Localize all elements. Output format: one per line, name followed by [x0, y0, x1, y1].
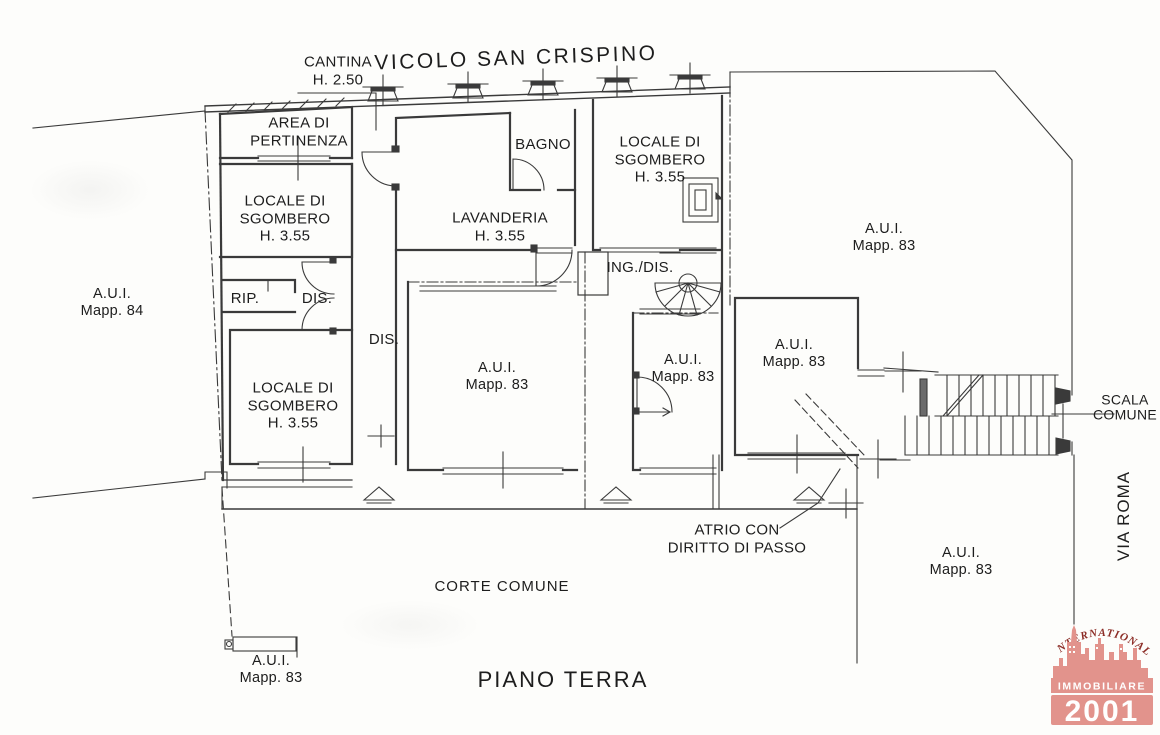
corte-comune-label: CORTE COMUNE [434, 578, 569, 596]
room-label-lavanderia: LAVANDERIAH. 3.55 [452, 209, 548, 244]
logo-immobiliare-text: IMMOBILIARE [1058, 681, 1146, 693]
parcel-label-mapp83-center: A.U.I.Mapp. 83 [652, 352, 715, 386]
bottom-band [222, 425, 863, 518]
logo-2001-text: 2001 [1065, 695, 1140, 726]
cantina-label: CANTINAH. 2.50 [304, 53, 372, 88]
room-label-rip: RIP. [231, 290, 259, 308]
street-label-via-roma: VIA ROMA [1114, 471, 1134, 561]
parcel-label-mapp83-top-right: A.U.I.Mapp. 83 [853, 221, 916, 255]
parcel-label-mapp83-center-right: A.U.I.Mapp. 83 [763, 337, 826, 371]
atrio-label: ATRIO CONDIRITTO DI PASSO [668, 521, 806, 556]
room-label-sgombero-3: LOCALE DISGOMBEROH. 3.55 [615, 133, 706, 186]
parcel-label-mapp84: A.U.I.Mapp. 84 [81, 286, 144, 320]
room-label-dis-2: DIS. [369, 331, 399, 349]
parcel-label-mapp83-bottom-right: A.U.I.Mapp. 83 [930, 545, 993, 579]
agency-logo: INTERNATIONAL IMMOBILIARE 2001 [1051, 614, 1153, 726]
parcel-label-mapp83-bottom-left: A.U.I.Mapp. 83 [240, 653, 303, 687]
floor-plan-drawing [0, 0, 1160, 735]
parcel-label-mapp83-center-left: A.U.I.Mapp. 83 [466, 360, 529, 394]
scala-comune-label: SCALACOMUNE [1093, 392, 1157, 421]
room-label-sgombero-2: LOCALE DISGOMBEROH. 3.55 [248, 379, 339, 432]
room-label-ing-dis: ING./DIS. [607, 259, 674, 277]
floor-title: PIANO TERRA [478, 667, 649, 693]
room-label-dis-1: DIS. [302, 290, 332, 308]
vent-symbols [364, 487, 824, 503]
scala-comune-stairs [858, 352, 1070, 478]
room-label-bagno: BAGNO [515, 136, 571, 154]
room-label-pertinenza: AREA DIPERTINENZA [250, 114, 348, 149]
spiral-stair [655, 274, 721, 316]
floor-plan-page: { "street_top": "VICOLO SAN CRISPINO", "… [0, 0, 1160, 735]
room-label-sgombero-1: LOCALE DISGOMBEROH. 3.55 [240, 192, 331, 245]
